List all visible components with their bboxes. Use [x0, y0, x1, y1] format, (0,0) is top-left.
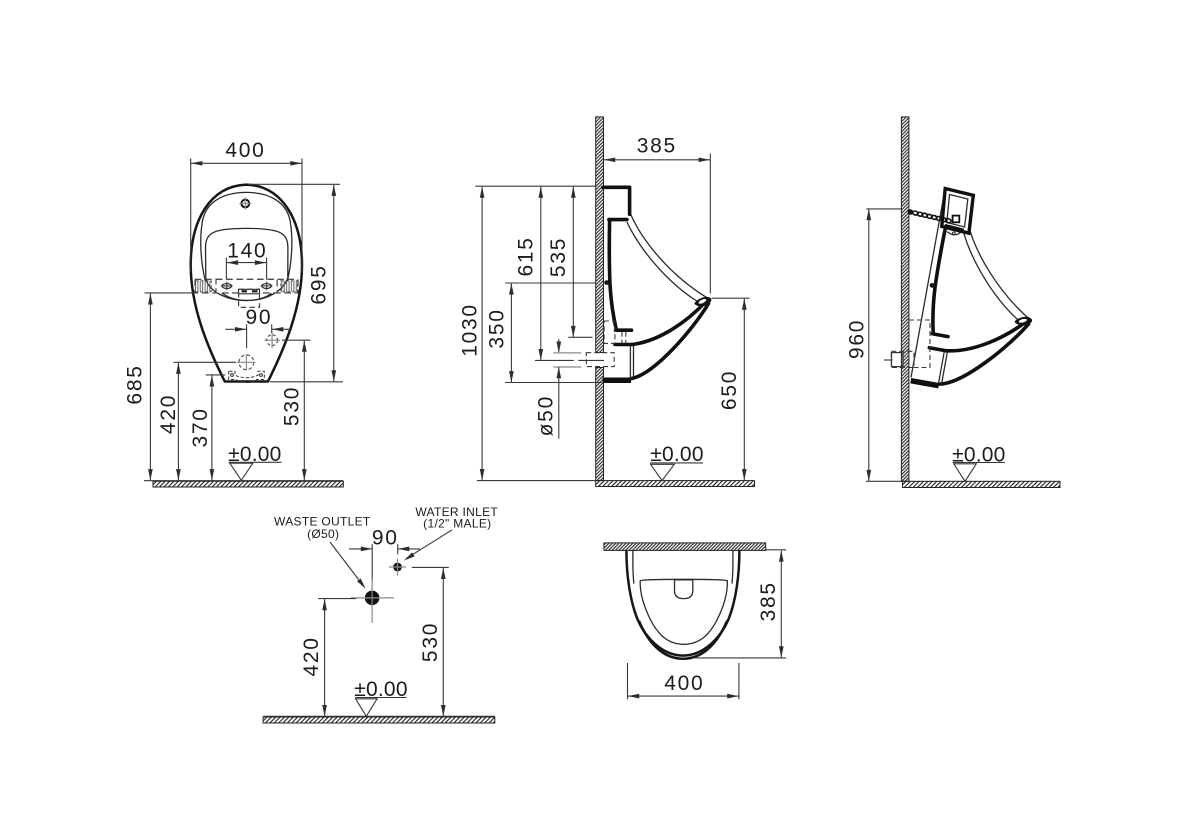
svg-text:385: 385 [757, 581, 780, 621]
svg-text:ø50: ø50 [535, 395, 558, 436]
svg-text:350: 350 [486, 308, 509, 348]
svg-text:(Ø50): (Ø50) [307, 527, 339, 541]
svg-text:535: 535 [547, 237, 570, 277]
svg-text:650: 650 [718, 370, 741, 410]
svg-text:695: 695 [308, 264, 331, 304]
svg-text:(1/2" MALE): (1/2" MALE) [423, 517, 491, 531]
svg-text:960: 960 [846, 319, 869, 359]
svg-text:530: 530 [281, 386, 304, 426]
svg-text:420: 420 [157, 394, 180, 434]
svg-text:685: 685 [124, 364, 147, 404]
svg-text:615: 615 [515, 236, 538, 276]
svg-text:1030: 1030 [458, 303, 481, 357]
svg-text:385: 385 [637, 135, 677, 158]
svg-text:400: 400 [225, 139, 265, 162]
svg-text:530: 530 [419, 622, 442, 662]
svg-text:370: 370 [189, 407, 212, 447]
svg-text:90: 90 [246, 306, 273, 329]
svg-text:90: 90 [372, 526, 399, 549]
svg-text:400: 400 [664, 672, 704, 695]
svg-text:420: 420 [300, 636, 323, 676]
svg-text:140: 140 [227, 239, 267, 262]
